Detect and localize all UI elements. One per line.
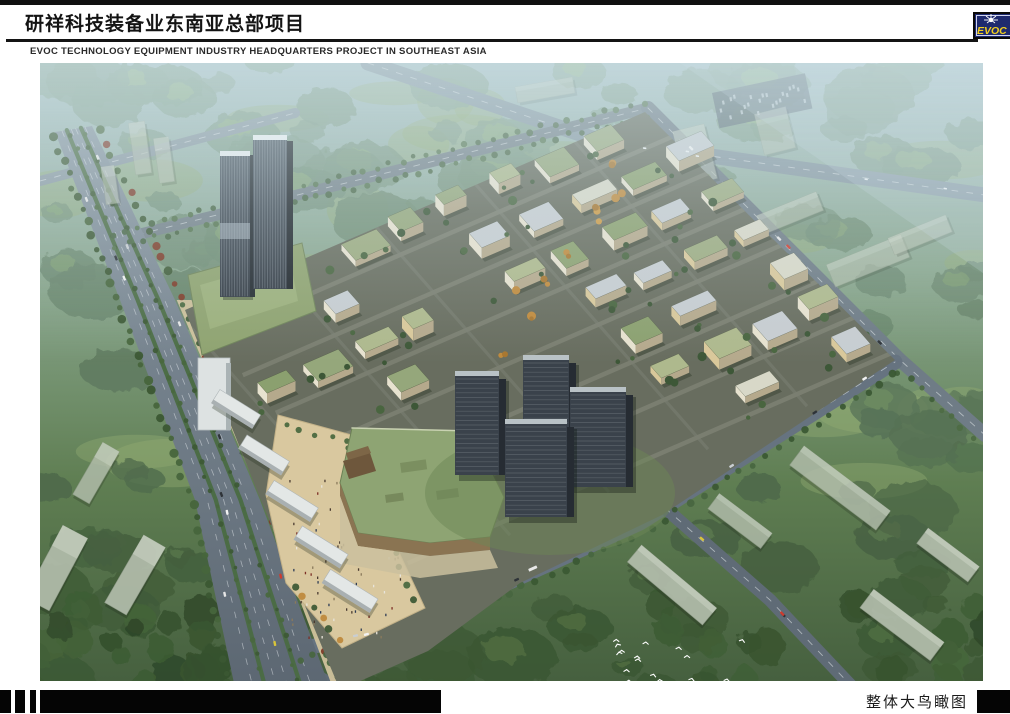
footer-bar-right [977, 690, 1010, 713]
barcode-stripe [11, 690, 15, 713]
aerial-rendering [40, 63, 983, 681]
barcode-stripe [36, 690, 40, 713]
presentation-board: 研祥科技装备业东南亚总部项目 EVOC EVOC TECHNOLOGY EQUI… [0, 0, 1010, 714]
figure-caption: 整体大鸟瞰图 [866, 691, 968, 713]
top-black-strip [0, 0, 1010, 5]
footer-bar-left [0, 690, 441, 713]
header-rule [6, 39, 978, 42]
project-title-cn: 研祥科技装备业东南亚总部项目 [25, 13, 305, 37]
evoc-logo-text: EVOC [977, 26, 1007, 37]
project-title-en: EVOC TECHNOLOGY EQUIPMENT INDUSTRY HEADQ… [30, 46, 487, 57]
evoc-starburst-icon [983, 14, 999, 24]
aerial-rendering-scene [40, 63, 983, 681]
evoc-logo: EVOC [973, 12, 1010, 39]
barcode-stripe [25, 690, 30, 713]
